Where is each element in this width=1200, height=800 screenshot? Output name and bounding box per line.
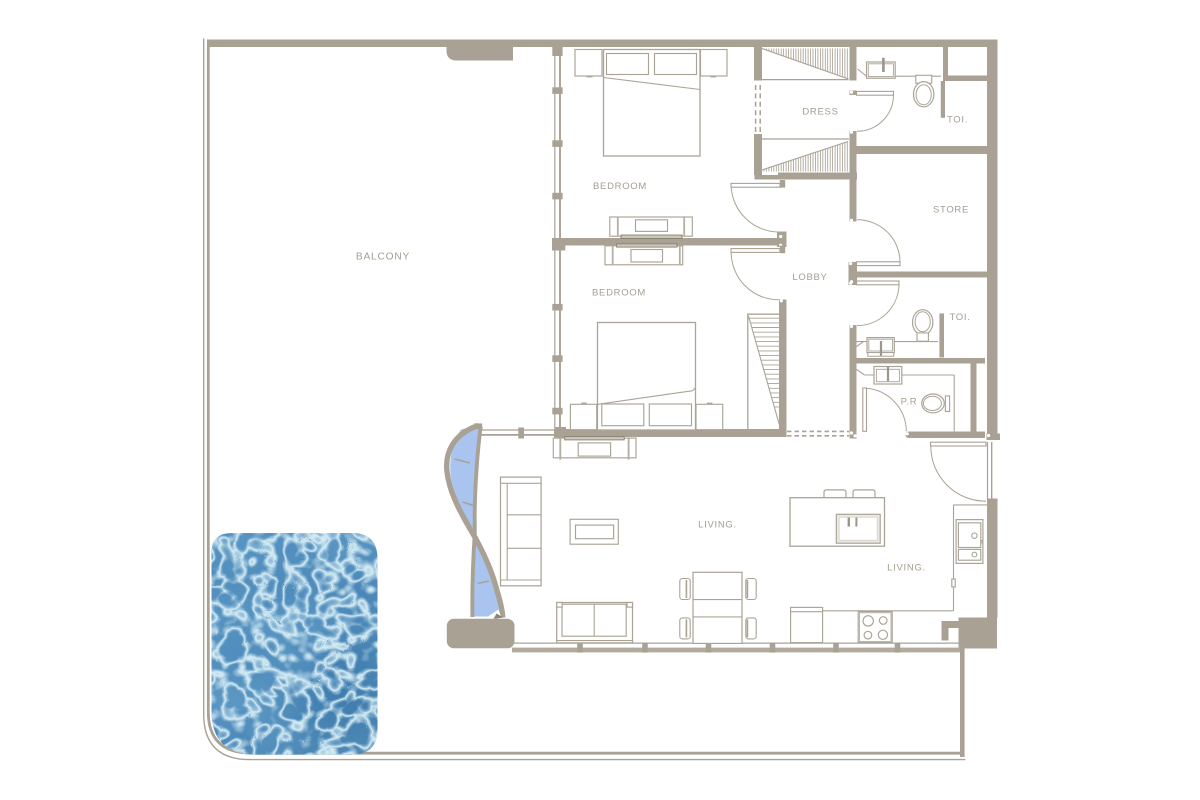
svg-text:BALCONY: BALCONY xyxy=(356,252,410,263)
svg-text:TOI.: TOI. xyxy=(947,115,968,126)
svg-text:DRESS: DRESS xyxy=(802,107,838,118)
svg-text:STORE: STORE xyxy=(933,205,969,216)
svg-text:LOBBY: LOBBY xyxy=(792,272,827,283)
svg-text:LIVING.: LIVING. xyxy=(887,563,926,574)
svg-text:P.R: P.R xyxy=(901,397,918,408)
svg-text:TOI.: TOI. xyxy=(949,312,970,323)
svg-text:BEDROOM: BEDROOM xyxy=(593,181,647,192)
svg-text:BEDROOM: BEDROOM xyxy=(592,288,646,299)
svg-text:LIVING.: LIVING. xyxy=(698,520,737,531)
